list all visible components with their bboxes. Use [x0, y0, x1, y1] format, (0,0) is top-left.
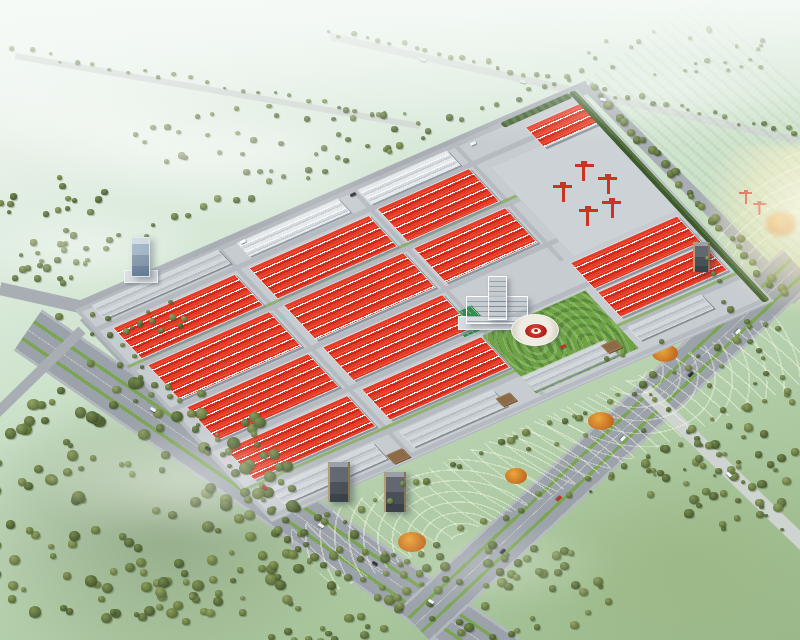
crane-cab: [605, 174, 611, 177]
gantry-cranes-3: [597, 174, 619, 196]
plaza-logo-dot: [534, 329, 538, 332]
gantry-cranes-5: [601, 198, 623, 220]
crane-jib: [602, 201, 621, 204]
flowerbed-4: [505, 468, 527, 484]
plaza-logo-ring: [524, 323, 548, 339]
crane-cab: [581, 161, 587, 164]
tree: [380, 625, 388, 632]
crane-jib: [575, 164, 594, 167]
gantry-cranes-4: [577, 206, 599, 228]
crane-jib: [598, 177, 617, 180]
crane-mast: [562, 187, 565, 202]
tree: [784, 392, 790, 397]
tree: [791, 448, 799, 456]
tree: [760, 430, 769, 438]
tree: [95, 196, 103, 203]
crane-cab: [560, 182, 566, 185]
tree: [10, 193, 17, 200]
mist-left: [0, 205, 210, 290]
office-building-core: [488, 276, 507, 320]
tree: [514, 628, 520, 634]
tree: [344, 614, 353, 623]
tree: [331, 636, 338, 640]
gantry-cranes-1: [552, 182, 574, 204]
tree: [365, 624, 370, 629]
gantry-cranes-2: [573, 161, 595, 183]
tree: [360, 631, 369, 640]
crane-mast: [611, 203, 614, 218]
tree: [57, 387, 65, 394]
crane-mast: [607, 179, 610, 194]
plaza-logo-mark: [531, 328, 541, 334]
logo-plaza: [511, 314, 559, 346]
mist-bottom-mid: [360, 520, 620, 610]
tree: [357, 613, 364, 620]
tree: [72, 198, 77, 203]
tree: [726, 423, 732, 428]
tree: [325, 631, 331, 637]
crane-cab: [585, 206, 591, 209]
sun-glow: [695, 145, 800, 310]
crane-mast: [583, 166, 586, 181]
aerial-industrial-park-rendering: [0, 0, 800, 640]
sky-haze-top: [0, 0, 800, 145]
tree: [744, 423, 754, 432]
crane-jib: [579, 209, 598, 212]
tree: [741, 435, 746, 440]
crane-jib: [553, 185, 572, 188]
flowerbed-2: [588, 412, 614, 430]
crane-mast: [587, 211, 590, 226]
tree: [789, 399, 795, 405]
tree: [65, 196, 71, 201]
mist-forest: [30, 425, 340, 540]
twin-tower-east: [384, 472, 406, 512]
crane-cab: [609, 198, 615, 201]
